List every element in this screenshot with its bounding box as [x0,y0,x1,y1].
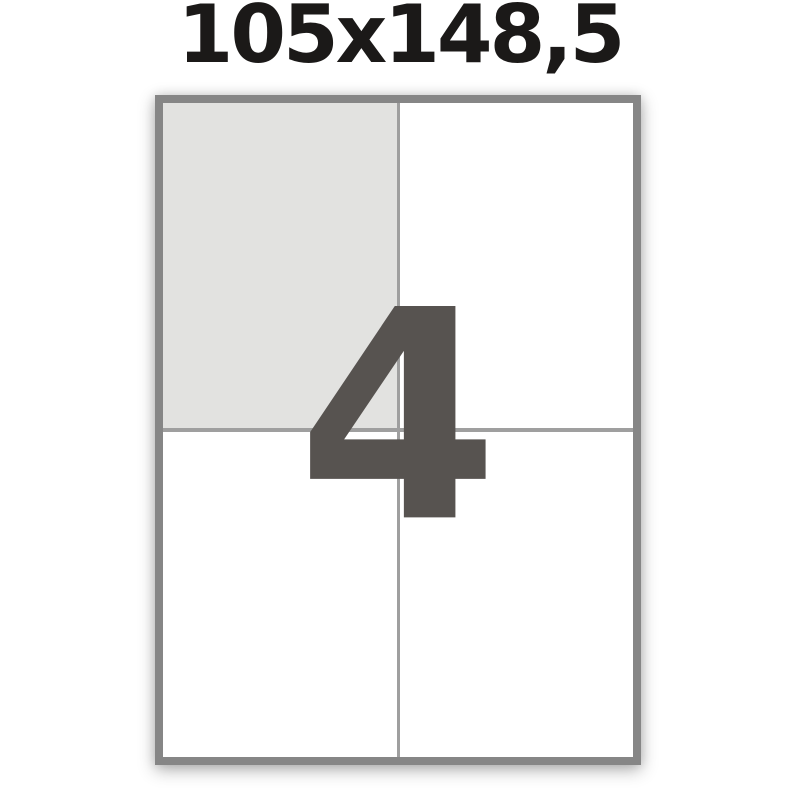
label-size-title: 105x148,5 [0,0,800,81]
product-image: 105x148,5 4 [0,0,800,800]
label-grid [163,103,633,757]
label-cell-top-right [400,103,634,428]
label-sheet: 4 [155,95,641,765]
label-cell-top-left [163,103,397,428]
label-cell-bottom-left [163,432,397,757]
label-cell-bottom-right [400,432,634,757]
